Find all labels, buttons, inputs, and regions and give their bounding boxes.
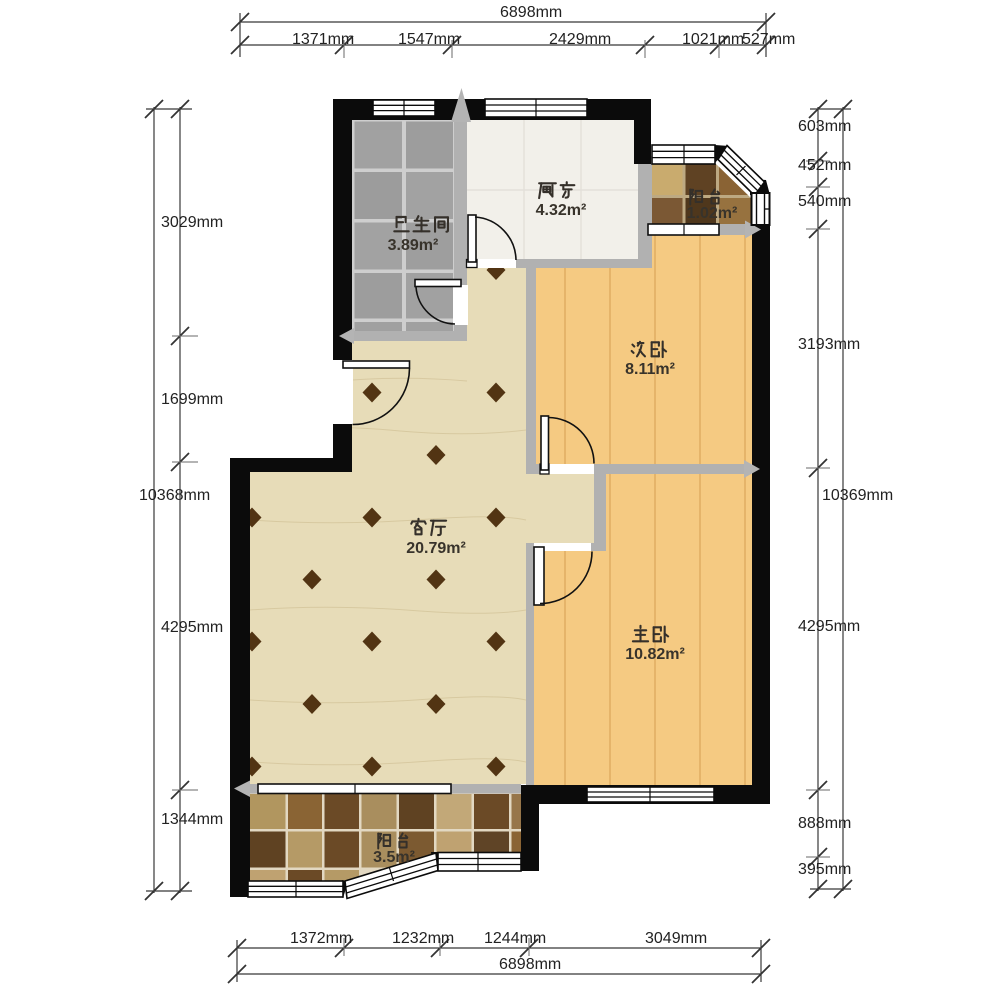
svg-text:527mm: 527mm: [742, 31, 795, 48]
svg-text:20.79m²: 20.79m²: [406, 540, 466, 557]
svg-text:3.5m²: 3.5m²: [373, 849, 415, 866]
svg-text:3049mm: 3049mm: [645, 930, 707, 947]
svg-text:10369mm: 10369mm: [822, 487, 893, 504]
svg-text:8.11m²: 8.11m²: [625, 361, 675, 378]
svg-text:6898mm: 6898mm: [500, 4, 562, 21]
svg-text:4295mm: 4295mm: [161, 619, 223, 636]
svg-text:2429mm: 2429mm: [549, 31, 611, 48]
svg-text:1.02m²: 1.02m²: [687, 205, 738, 222]
svg-text:4.32m²: 4.32m²: [536, 202, 587, 219]
svg-text:1547mm: 1547mm: [398, 31, 460, 48]
svg-text:4295mm: 4295mm: [798, 618, 860, 635]
svg-text:3029mm: 3029mm: [161, 214, 223, 231]
svg-text:1372mm: 1372mm: [290, 930, 352, 947]
svg-text:1021mm: 1021mm: [682, 31, 744, 48]
svg-text:1344mm: 1344mm: [161, 811, 223, 828]
svg-text:10368mm: 10368mm: [139, 487, 210, 504]
svg-text:1232mm: 1232mm: [392, 930, 454, 947]
svg-text:1244mm: 1244mm: [484, 930, 546, 947]
svg-text:10.82m²: 10.82m²: [625, 646, 685, 663]
svg-text:6898mm: 6898mm: [499, 956, 561, 973]
svg-text:1699mm: 1699mm: [161, 391, 223, 408]
svg-text:3193mm: 3193mm: [798, 336, 860, 353]
svg-text:1371mm: 1371mm: [292, 31, 354, 48]
svg-text:3.89m²: 3.89m²: [388, 237, 439, 254]
